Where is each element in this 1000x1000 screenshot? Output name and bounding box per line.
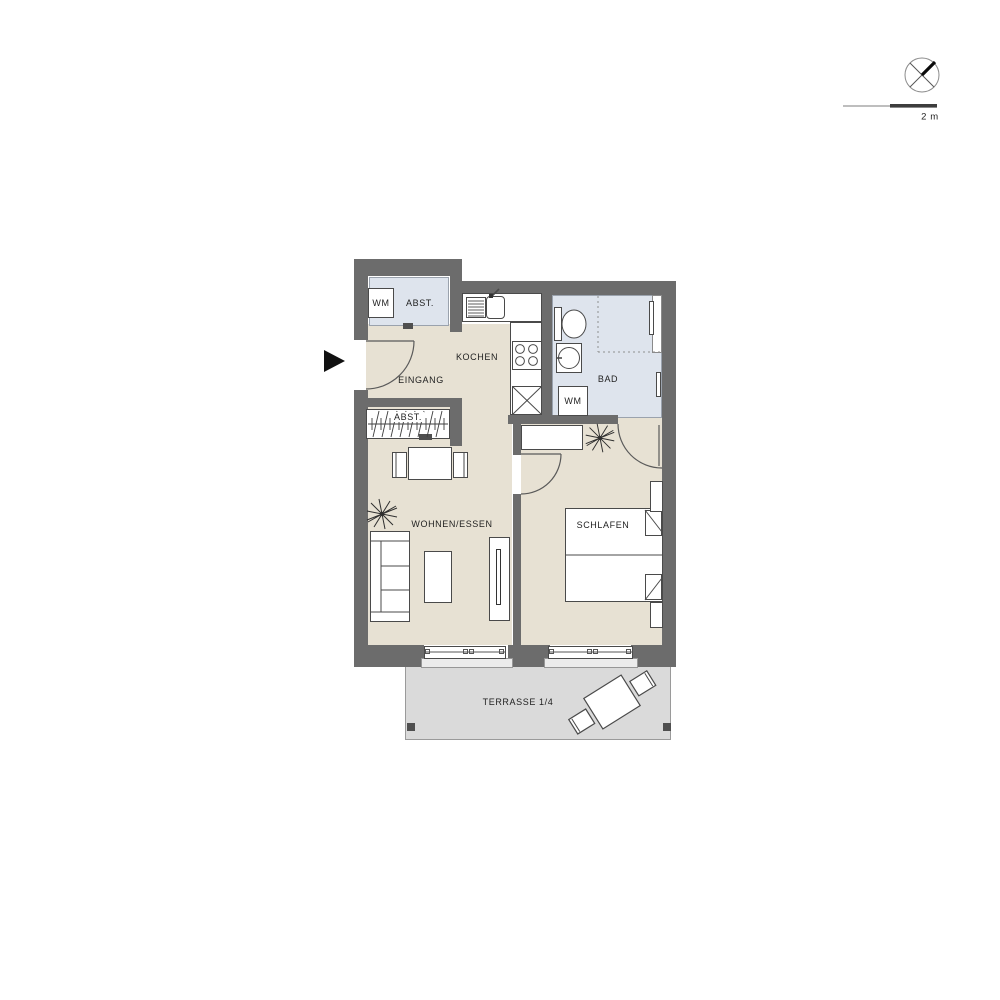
closet-handle (419, 434, 432, 440)
wall-kitchen-bath (542, 295, 552, 420)
dining-chair-right (453, 452, 468, 478)
label-utility-wm: WM (372, 298, 389, 308)
window-mullion (469, 649, 474, 654)
wall-bottom-left-corner (354, 645, 424, 667)
scale-bar (843, 104, 937, 108)
room-label-bath: BAD (598, 374, 618, 384)
nightstand (650, 481, 663, 512)
wall-bedroom-door-stub (513, 424, 521, 455)
toilet-cistern (554, 307, 562, 341)
wall-top-left (354, 259, 462, 276)
wall-right (662, 281, 676, 667)
terrace-post (407, 723, 415, 731)
wall-closet-top (366, 398, 462, 407)
kitchen-sink-basin (486, 296, 505, 319)
tv (496, 549, 501, 605)
bedroom-sideboard (521, 425, 583, 450)
sofa (370, 531, 410, 622)
window-sill-bedroom (544, 658, 638, 668)
compass-icon (905, 58, 939, 92)
wall-closet-side (450, 398, 462, 446)
floor-plan-canvas: WM ABST. KOCHEN EINGANG ABST. BAD WM WOH… (0, 0, 1000, 1000)
wall-below-bath (508, 415, 618, 424)
kitchen-cooktop (512, 341, 542, 370)
room-label-entrance: EINGANG (398, 375, 444, 385)
label-closet-abst: ABST. (392, 412, 424, 422)
label-bath-wm: WM (564, 396, 581, 406)
pillow (645, 574, 662, 600)
room-label-terrace: TERRASSE 1/4 (483, 697, 554, 707)
window-mullion (626, 649, 631, 654)
bath-radiator (656, 372, 661, 397)
room-label-bedroom: SCHLAFEN (577, 520, 630, 530)
utility-door-mark (403, 323, 413, 329)
window-sill-living (421, 658, 513, 668)
label-utility-abst: ABST. (406, 298, 434, 308)
dining-table (408, 447, 452, 480)
scale-label: 2 m (921, 112, 939, 123)
kitchen-fridge-box (512, 386, 542, 415)
kitchen-sink-drainboard (466, 297, 486, 318)
window-mullion (499, 649, 504, 654)
room-label-living: WOHNEN/ESSEN (411, 519, 492, 529)
window-mullion (593, 649, 598, 654)
room-label-kitchen: KOCHEN (456, 352, 498, 362)
window-mullion (463, 649, 468, 654)
window-mullion (425, 649, 430, 654)
entrance-arrow-icon (324, 350, 345, 372)
washbasin-cabinet (556, 343, 582, 373)
terrace-post (663, 723, 671, 731)
nightstand (650, 602, 663, 628)
window-mullion (587, 649, 592, 654)
dining-chair-left (392, 452, 407, 478)
shower-glass-panel (649, 301, 654, 335)
pillow (645, 510, 662, 536)
window-mullion (549, 649, 554, 654)
coffee-table (424, 551, 452, 603)
wall-living-bedroom (513, 494, 521, 645)
